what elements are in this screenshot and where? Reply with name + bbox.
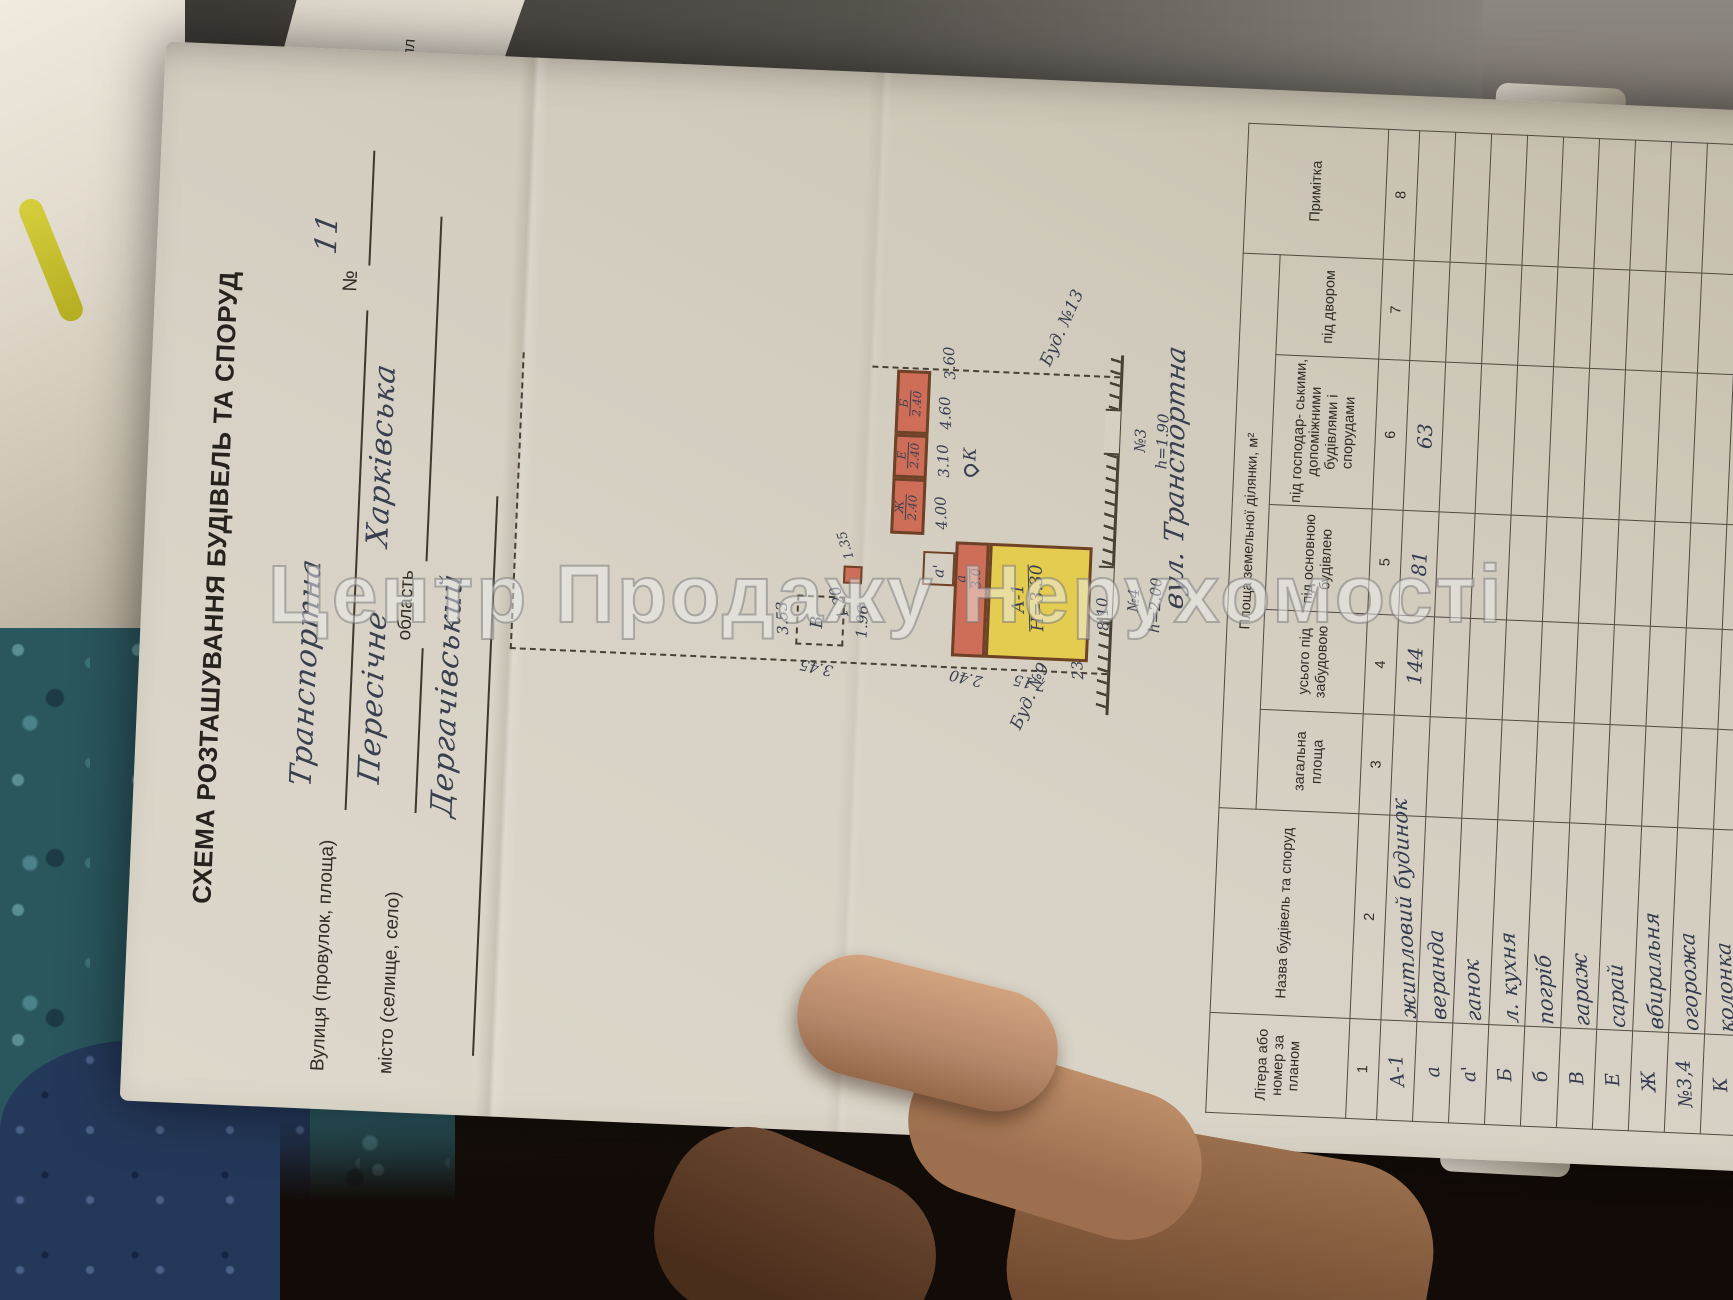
- neighbor-right-label: Буд. №13: [1036, 287, 1088, 370]
- row-letter: Е: [1601, 1072, 1624, 1087]
- row-name: гараж: [1567, 952, 1594, 1027]
- watermark-text: Центр Продажу Нерухомості: [268, 548, 1504, 642]
- table-col8-header: Примітка: [1243, 123, 1389, 259]
- row-letter: Ж: [1637, 1070, 1660, 1093]
- row-name: вбиральня: [1639, 911, 1668, 1030]
- row-name: погріб: [1531, 954, 1558, 1026]
- col-number-7: 7: [1379, 259, 1414, 360]
- row-name: огорожа: [1675, 931, 1703, 1032]
- table-col3-header: загальна площа: [1256, 709, 1363, 813]
- col-number-1: 1: [1346, 1019, 1381, 1120]
- gate-n3: [1104, 409, 1121, 456]
- number-underline: [368, 151, 375, 266]
- row-name: сарай: [1603, 963, 1630, 1029]
- row-letter: А-1: [1385, 1053, 1409, 1087]
- block-cell-zh-label: Ж2.40: [893, 494, 920, 521]
- row-letter: В: [1565, 1071, 1588, 1086]
- block-e-width-dim: 3.10: [934, 444, 953, 478]
- photo-frame: Вулиця (провулок, пл місто (селище, село…: [0, 0, 1733, 1300]
- table-col1-header: Літера або номер за планом: [1206, 1012, 1350, 1118]
- oblast-value: Харківська: [360, 361, 403, 550]
- table-col7-header: під двором: [1276, 255, 1383, 359]
- row-letter: Б: [1493, 1068, 1516, 1083]
- city-underline: [415, 648, 424, 813]
- row-letter: К: [1709, 1077, 1732, 1093]
- pump-k: К: [960, 447, 981, 477]
- block-cell-b-label: Б2.40: [897, 390, 924, 417]
- row-letter: №3,4: [1672, 1058, 1697, 1107]
- city-label: місто (селище, село): [375, 891, 405, 1075]
- row-name: л. кухня: [1495, 931, 1523, 1024]
- block-b-width-dim: 4.60: [936, 396, 955, 430]
- row-name: веранда: [1423, 928, 1451, 1021]
- street-fence-line: [1095, 355, 1124, 715]
- block-zh-width-dim: 4.00: [931, 496, 950, 530]
- page-title: СХЕМА РОЗТАШУВАННЯ БУДІВЕЛЬ ТА СПОРУД: [186, 270, 245, 904]
- table-col6-header: під господар- ськими, допоміжними будівл…: [1269, 355, 1378, 509]
- pump-icon: [961, 461, 979, 479]
- number-label: №: [339, 270, 363, 292]
- row-built-total: 144: [1402, 646, 1428, 685]
- street-label: Вулиця (провулок, площа): [307, 839, 339, 1071]
- row-aux-buildings: 63: [1412, 423, 1437, 449]
- fence3-label: №3: [1131, 428, 1150, 453]
- row-name: колонка: [1711, 941, 1733, 1033]
- veranda-depth-dim: 2.40: [948, 666, 985, 691]
- row-letter: а: [1421, 1066, 1444, 1079]
- block-cell-e-label: Е2.40: [895, 442, 922, 469]
- garage-depth-dim: 3.45: [798, 655, 835, 680]
- row-letter: б: [1529, 1070, 1552, 1083]
- table-col2-header: Назва будівель та споруд: [1210, 808, 1359, 1019]
- block-end-dim: 3.60: [940, 346, 959, 380]
- row-letter: а': [1457, 1065, 1480, 1083]
- oblast-underline: [426, 217, 443, 562]
- row-name: ганок: [1459, 958, 1486, 1022]
- row-name: житловий будинок: [1387, 797, 1421, 1019]
- number-value: 11: [309, 210, 346, 257]
